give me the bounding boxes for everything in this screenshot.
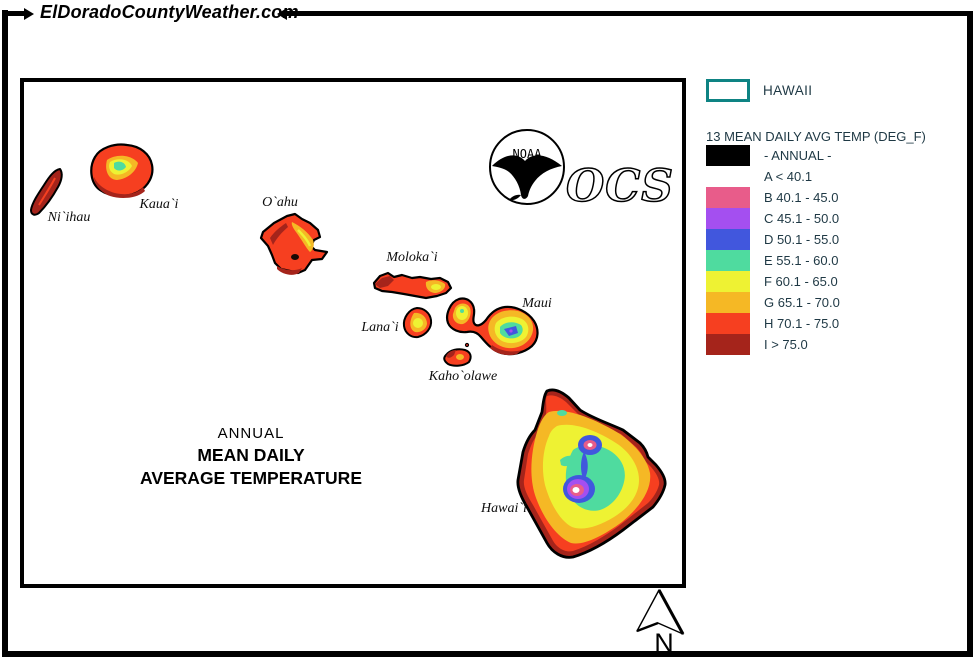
banner-line-left bbox=[2, 11, 24, 16]
ocs-logo-text: OCS bbox=[566, 161, 674, 212]
page-border-left bbox=[2, 10, 8, 657]
noaa-logo: NOAA bbox=[490, 130, 564, 204]
islet-molokini bbox=[465, 343, 468, 346]
legend-label-c: C 45.1 - 50.0 bbox=[764, 211, 839, 226]
legend-label-b: B 40.1 - 45.0 bbox=[764, 190, 838, 205]
legend-row: C 45.1 - 50.0 bbox=[706, 208, 840, 229]
page: { "site": { "banner_title": "ElDoradoCou… bbox=[0, 0, 980, 660]
island-label-kahoolawe: Kaho`olawe bbox=[429, 369, 497, 385]
north-arrow: N bbox=[630, 586, 702, 656]
north-arrow-label: N bbox=[654, 628, 674, 656]
legend-row: H 70.1 - 75.0 bbox=[706, 313, 840, 334]
island-label-hawaii: Hawai`i bbox=[481, 501, 527, 517]
legend-label-i: I > 75.0 bbox=[764, 337, 808, 352]
legend-region-label: HAWAII bbox=[763, 83, 812, 98]
legend-swatch-g bbox=[706, 292, 750, 313]
legend-label-f: F 60.1 - 65.0 bbox=[764, 274, 838, 289]
legend-label-annual: - ANNUAL - bbox=[764, 148, 831, 163]
legend-swatch-c bbox=[706, 208, 750, 229]
map-title-line3: AVERAGE TEMPERATURE bbox=[120, 467, 382, 490]
legend-row: - ANNUAL - bbox=[706, 145, 840, 166]
page-border-bottom bbox=[2, 651, 973, 657]
legend-row: B 40.1 - 45.0 bbox=[706, 187, 840, 208]
legend-swatch-annual bbox=[706, 145, 750, 166]
island-molokai bbox=[374, 273, 451, 298]
island-label-molokai: Moloka`i bbox=[386, 250, 437, 266]
legend-label-g: G 65.1 - 70.0 bbox=[764, 295, 840, 310]
island-lanai bbox=[404, 308, 431, 337]
legend-label-d: D 50.1 - 55.0 bbox=[764, 232, 839, 247]
legend-row: D 50.1 - 55.0 bbox=[706, 229, 840, 250]
legend-swatch-b bbox=[706, 187, 750, 208]
island-hawaii bbox=[518, 390, 665, 557]
map-title: ANNUAL MEAN DAILY AVERAGE TEMPERATURE bbox=[120, 424, 382, 490]
island-niihau bbox=[31, 169, 62, 215]
island-label-kauai: Kaua`i bbox=[140, 197, 179, 213]
legend-label-a: A < 40.1 bbox=[764, 169, 812, 184]
page-border-right bbox=[967, 11, 973, 657]
legend-region-row: HAWAII bbox=[706, 76, 812, 104]
legend-label-e: E 55.1 - 60.0 bbox=[764, 253, 838, 268]
legend-row: G 65.1 - 70.0 bbox=[706, 292, 840, 313]
map-title-line1: ANNUAL bbox=[120, 424, 382, 444]
legend-swatch-e bbox=[706, 250, 750, 271]
map-frame: NOAA OCS bbox=[20, 78, 686, 588]
island-label-niihau: Ni`ihau bbox=[48, 210, 91, 226]
island-oahu bbox=[261, 214, 327, 275]
legend-swatch-i bbox=[706, 334, 750, 355]
legend-row: A < 40.1 bbox=[706, 166, 840, 187]
island-label-lanai: Lana`i bbox=[361, 320, 398, 336]
legend-rows: - ANNUAL - A < 40.1 B 40.1 - 45.0 C 45.1… bbox=[706, 145, 840, 355]
hawaii-islands-map: NOAA OCS bbox=[24, 82, 682, 584]
island-label-maui: Maui bbox=[522, 296, 552, 312]
legend-swatch-h bbox=[706, 313, 750, 334]
site-banner-title: ElDoradoCountyWeather.com bbox=[40, 2, 299, 23]
island-kauai bbox=[91, 145, 152, 198]
legend-swatch-f bbox=[706, 271, 750, 292]
legend-swatch-d bbox=[706, 229, 750, 250]
island-label-oahu: O`ahu bbox=[262, 195, 298, 211]
legend-region-box bbox=[706, 79, 750, 102]
map-title-line2: MEAN DAILY bbox=[120, 444, 382, 467]
legend-row: E 55.1 - 60.0 bbox=[706, 250, 840, 271]
legend-row: F 60.1 - 65.0 bbox=[706, 271, 840, 292]
banner-line-left-arrow-icon bbox=[24, 8, 34, 20]
island-kahoolawe bbox=[444, 349, 470, 366]
legend-title: 13 MEAN DAILY AVG TEMP (DEG_F) bbox=[706, 129, 926, 144]
banner-line-right bbox=[287, 11, 973, 16]
legend-row: I > 75.0 bbox=[706, 334, 840, 355]
legend-label-h: H 70.1 - 75.0 bbox=[764, 316, 839, 331]
